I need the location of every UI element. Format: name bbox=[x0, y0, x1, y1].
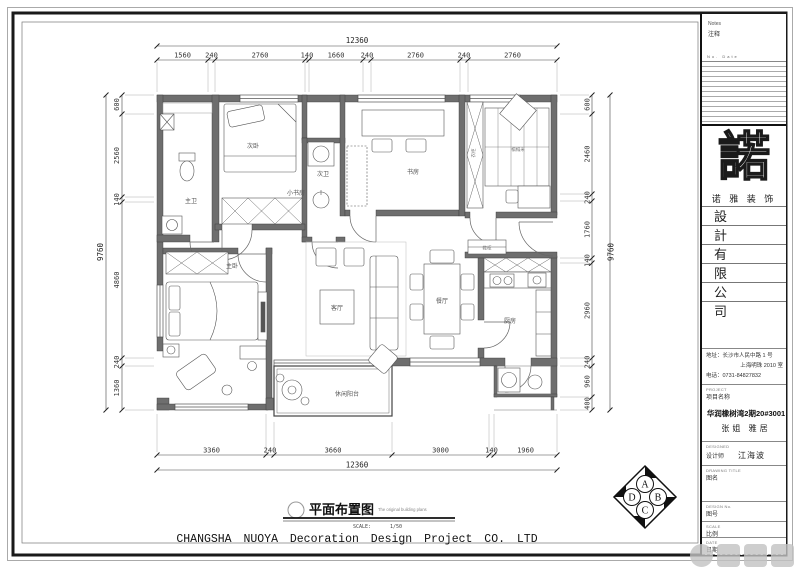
dim-label: 1660 bbox=[328, 52, 345, 60]
frame-border bbox=[13, 13, 786, 555]
master-bath-fixtures bbox=[160, 114, 195, 234]
drawing-title-section: DRAWING TITLE 图名 bbox=[702, 465, 786, 501]
design-no-section: DESIGN No. 图号 bbox=[702, 501, 786, 521]
address-block: 地址：长沙市人民中路 1 号 上海明珠 2010 室 电话：0731-84827… bbox=[702, 348, 786, 384]
drawing-title-cn: 平面布置图 bbox=[309, 502, 374, 517]
notes-label-cn: 注释 bbox=[708, 29, 786, 38]
project-name: 华润橡树湾2期20#3001 bbox=[706, 408, 786, 419]
brand-name: 诺 雅 装 饰 bbox=[702, 192, 786, 206]
design-no-label-cn: 图号 bbox=[706, 509, 786, 518]
scale-label: SCALE: bbox=[353, 524, 371, 530]
notes-section: Notes 注释 bbox=[702, 14, 786, 54]
drawing-title-block: 平面布置图 The original building plans SCALE:… bbox=[176, 502, 537, 546]
compass-letter-d: D bbox=[628, 493, 635, 504]
dim-label: 240 bbox=[361, 52, 374, 60]
dim-label: 1960 bbox=[517, 447, 534, 455]
frame-outer-line bbox=[8, 8, 793, 561]
designed-label-en: DESIGNED bbox=[706, 444, 786, 449]
dim-label: 240 bbox=[584, 356, 592, 369]
designed-label-cn: 设计师 bbox=[706, 451, 724, 460]
project-label-cn: 项目名称 bbox=[706, 392, 786, 401]
dim-label: 600 bbox=[113, 98, 121, 111]
study-furniture bbox=[347, 110, 444, 206]
watermark-block bbox=[690, 544, 713, 567]
drawing-title-en: The original building plans bbox=[378, 507, 427, 512]
notes-label-en: Notes bbox=[708, 21, 786, 27]
company-char: 公 bbox=[702, 282, 786, 301]
dim-label: 4860 bbox=[113, 272, 121, 289]
dim-label: 140 bbox=[485, 447, 498, 455]
dim-total-bottom: 12360 bbox=[346, 461, 369, 470]
dim-label: 2760 bbox=[504, 52, 521, 60]
dim-total-top: 12360 bbox=[346, 36, 369, 45]
room-label-dining: 餐厅 bbox=[436, 297, 448, 305]
company-char: 司 bbox=[702, 301, 786, 320]
project-client: 张姐 雅居 bbox=[706, 423, 786, 434]
label-tatami: 榻榻米 bbox=[511, 146, 525, 153]
dim-label: 2460 bbox=[584, 146, 592, 163]
dim-label: 240 bbox=[264, 447, 277, 455]
dim-label: 140 bbox=[301, 52, 314, 60]
title-bullet-circle bbox=[288, 502, 304, 518]
dim-label: 3000 bbox=[432, 447, 449, 455]
designed-section: DESIGNED 设计师 江海波 bbox=[702, 441, 786, 465]
address-line2: 上海明珠 2010 室 bbox=[706, 362, 783, 372]
sheet-frame bbox=[8, 8, 793, 561]
company-char: 限 bbox=[702, 263, 786, 282]
project-section: PROJECT 项目名称 华润橡树湾2期20#3001 张姐 雅居 bbox=[702, 384, 786, 441]
top-left-setback bbox=[163, 103, 212, 113]
watermark-block bbox=[744, 544, 767, 567]
master-bedroom-furniture bbox=[163, 252, 267, 395]
compass-letter-a: A bbox=[641, 480, 649, 491]
scale-section: SCALE 比例 bbox=[702, 521, 786, 537]
company-char: 有 bbox=[702, 244, 786, 263]
room-label-study: 书房 bbox=[407, 168, 419, 176]
room-label-leisure-balcony: 休闲阳台 bbox=[335, 390, 359, 398]
dim-label: 2960 bbox=[584, 302, 592, 319]
watermark-block bbox=[717, 544, 740, 567]
room-label-kitchen: 厨房 bbox=[504, 317, 516, 325]
floorplan-drawing: 12360 1560 240 2760 140 1660 240 2760 24… bbox=[0, 0, 800, 569]
dim-label: 240 bbox=[113, 356, 121, 369]
dim-label: 240 bbox=[205, 52, 218, 60]
dim-label: 1360 bbox=[113, 380, 121, 397]
room-label-master-bedroom: 主卧 bbox=[226, 262, 238, 270]
dim-label: 3660 bbox=[325, 447, 342, 455]
sidebar-spacer bbox=[702, 320, 786, 348]
company-char: 計 bbox=[702, 225, 786, 244]
revision-table-rows bbox=[702, 62, 786, 124]
dim-label: 240 bbox=[458, 52, 471, 60]
room-label-master-bath: 主卫 bbox=[185, 197, 197, 205]
dim-label: 2560 bbox=[113, 147, 121, 164]
compass-letter-c: C bbox=[642, 506, 649, 517]
drawing-title-label-cn: 图名 bbox=[706, 473, 786, 482]
room-label-bath2: 次卫 bbox=[317, 170, 329, 178]
room-label-bedroom2: 次卧 bbox=[247, 142, 259, 150]
dim-label: 400 bbox=[584, 397, 592, 410]
company-char: 設 bbox=[702, 206, 786, 225]
company-name-vertical: 設 計 有 限 公 司 bbox=[702, 206, 786, 320]
dim-label: 3360 bbox=[203, 447, 220, 455]
living-room-furniture bbox=[306, 242, 406, 374]
dim-label: 960 bbox=[584, 375, 592, 388]
company-name-en: CHANGSHA NUOYA Decoration Design Project… bbox=[176, 533, 537, 546]
leisure-balcony-furniture bbox=[276, 374, 309, 405]
compass-rose: A B C D bbox=[614, 466, 676, 528]
compass-letter-b: B bbox=[655, 493, 662, 504]
dim-label: 1760 bbox=[584, 221, 592, 238]
dim-label: 2760 bbox=[407, 52, 424, 60]
dim-label: 1560 bbox=[174, 52, 191, 60]
dim-label: 600 bbox=[584, 98, 592, 111]
label-shoe-cabinet: 鞋柜 bbox=[483, 245, 492, 252]
dim-total-left: 9760 bbox=[96, 242, 105, 261]
room-label-living: 客厅 bbox=[331, 304, 343, 312]
watermark-block bbox=[771, 544, 794, 567]
scale-value: 1/50 bbox=[390, 524, 402, 530]
address-line3: 电话：0731-84827832 bbox=[706, 372, 783, 382]
company-logo-glyph: 諾 bbox=[702, 124, 786, 192]
designer-name: 江海波 bbox=[738, 450, 765, 461]
title-block-sidebar: Notes 注释 No. Date 諾 诺 雅 装 饰 設 計 有 限 公 司 … bbox=[700, 14, 786, 555]
dim-label: 140 bbox=[113, 193, 121, 206]
bedroom2-furniture bbox=[222, 104, 302, 224]
label-wardrobe: 衣柜 bbox=[470, 148, 477, 157]
floorplan-sheet: 12360 1560 240 2760 140 1660 240 2760 24… bbox=[0, 0, 800, 569]
watermark bbox=[690, 544, 798, 569]
address-line1: 地址：长沙市人民中路 1 号 bbox=[706, 352, 783, 362]
room-label-small-study: 小书房 bbox=[287, 189, 305, 197]
tatami-room-furniture bbox=[467, 94, 550, 208]
dim-total-right: 9760 bbox=[607, 242, 616, 261]
dim-label: 140 bbox=[584, 254, 592, 267]
dim-label: 240 bbox=[584, 191, 592, 204]
dim-label: 2760 bbox=[252, 52, 269, 60]
revision-table-header: No. Date bbox=[702, 54, 786, 62]
